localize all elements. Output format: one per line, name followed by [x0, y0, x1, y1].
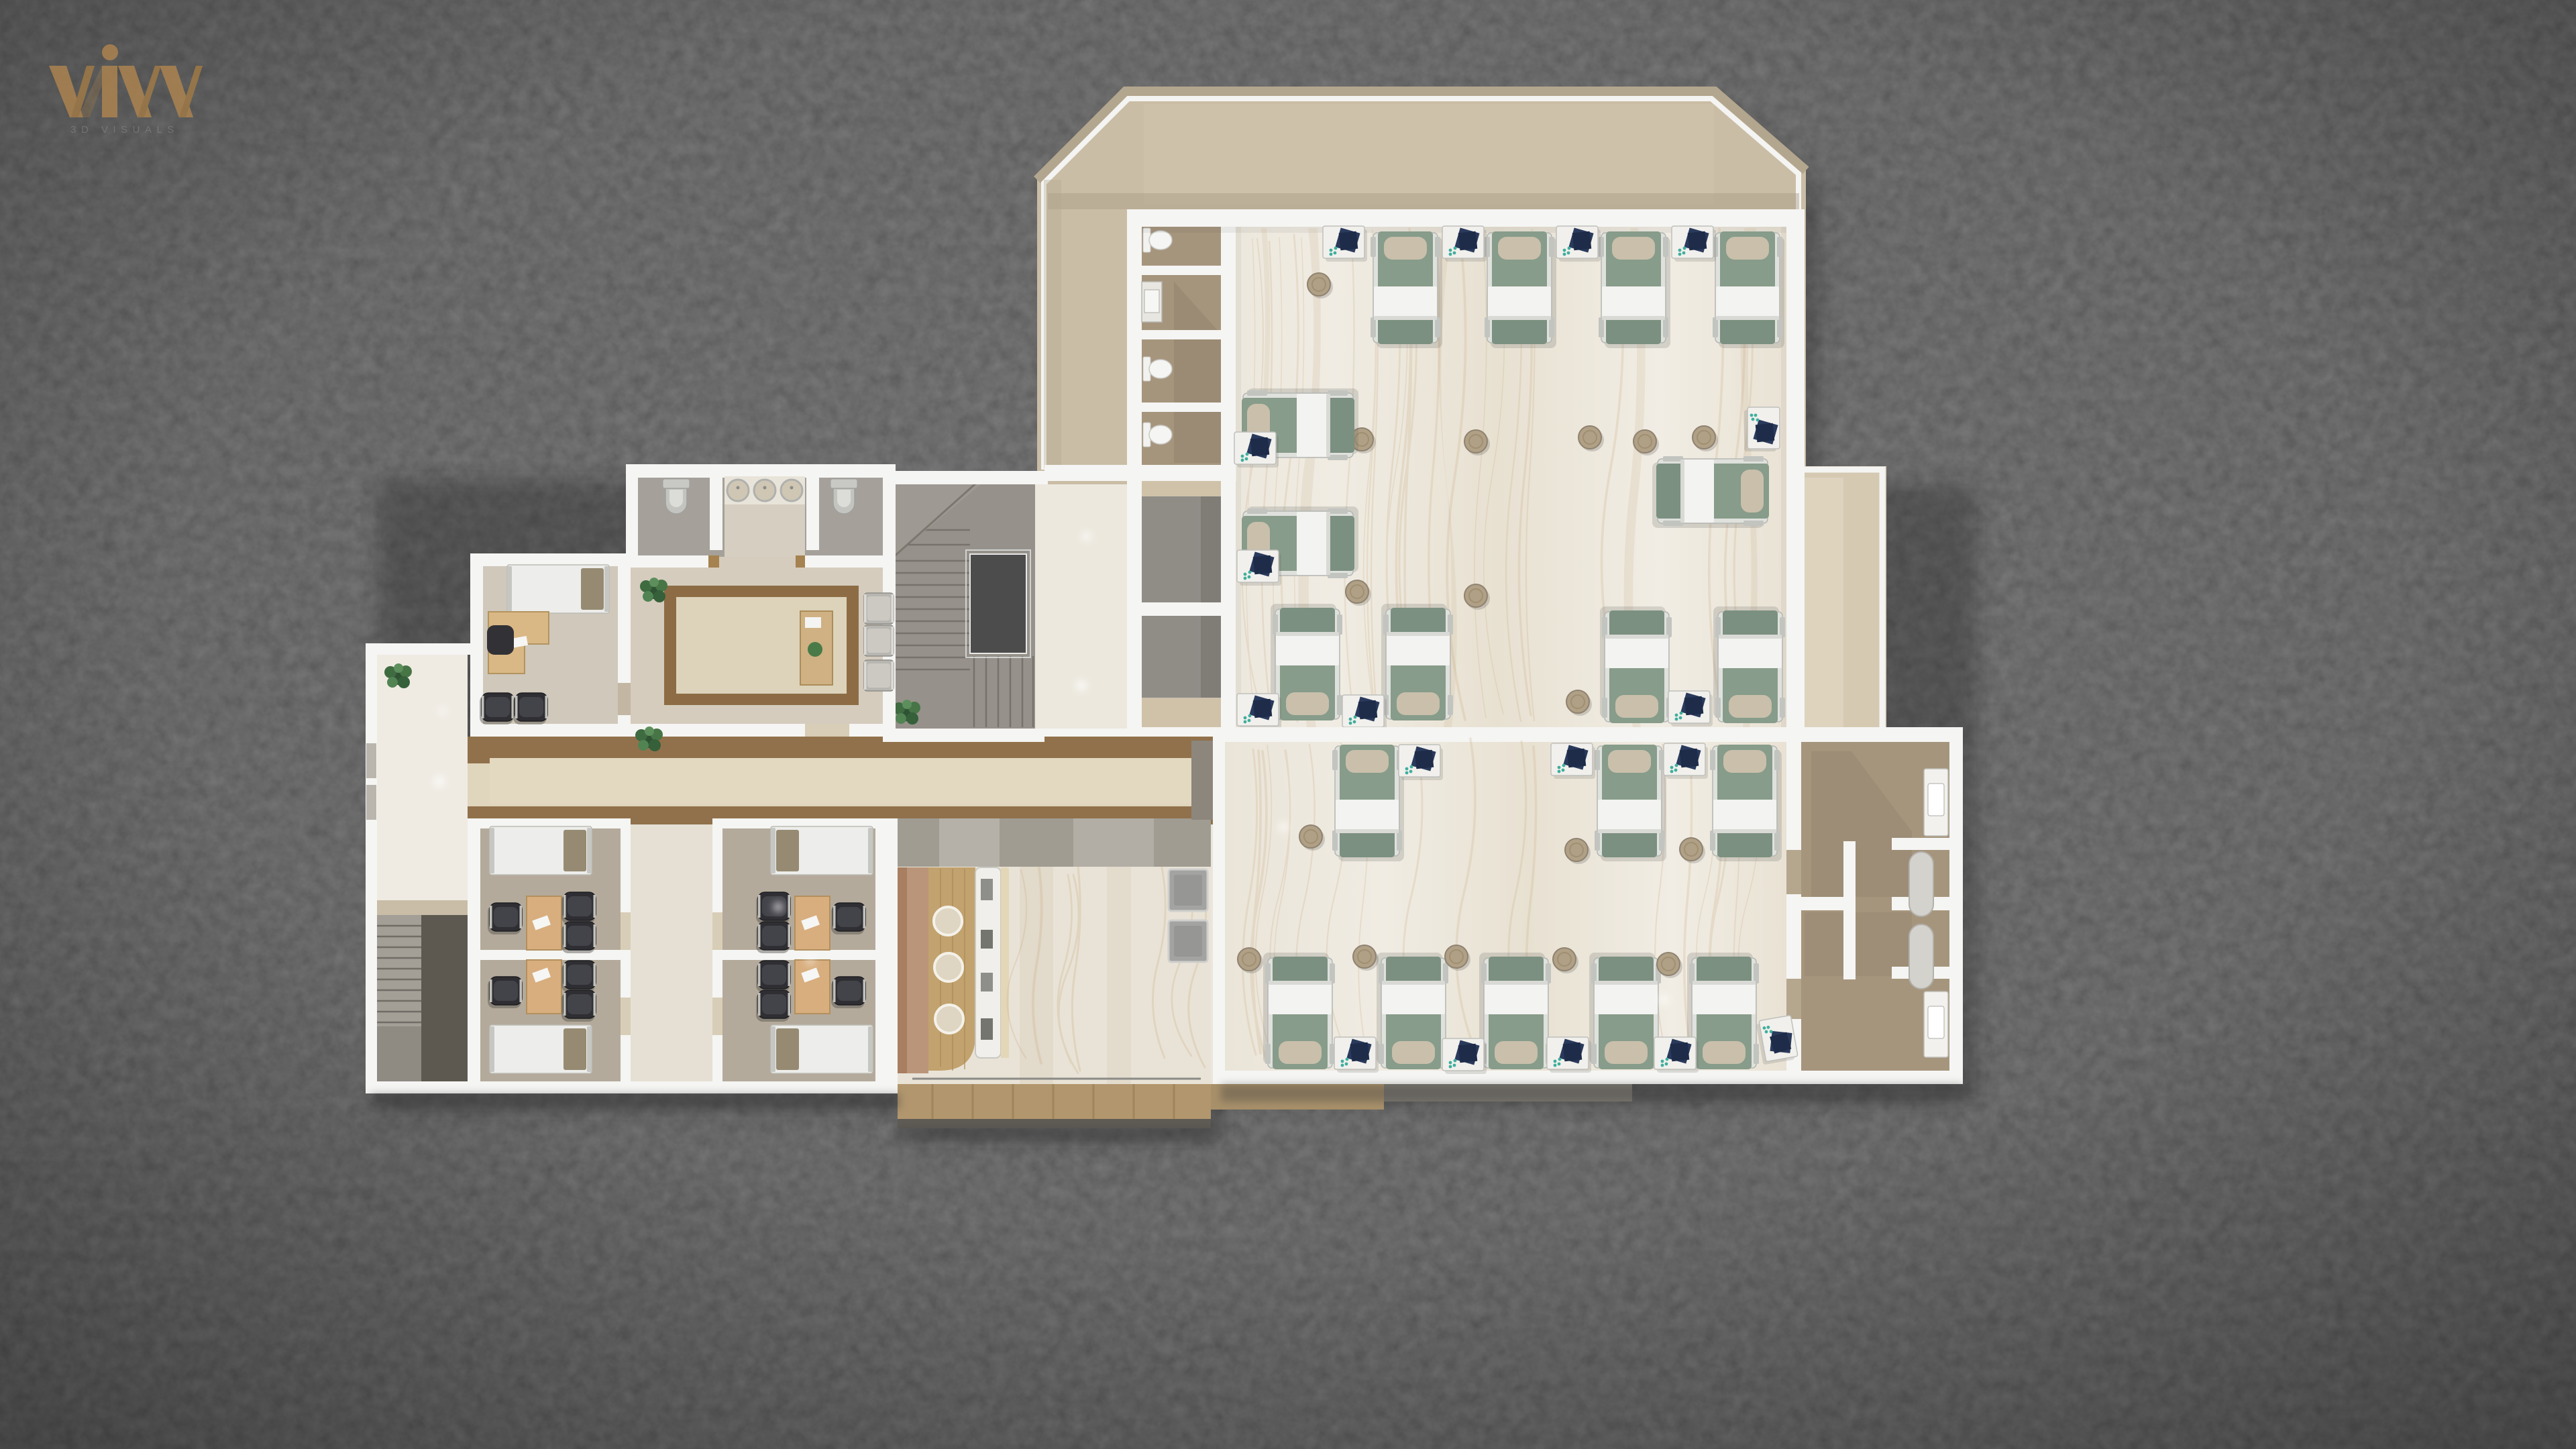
svg-text:3D VISUALS: 3D VISUALS	[70, 124, 179, 136]
